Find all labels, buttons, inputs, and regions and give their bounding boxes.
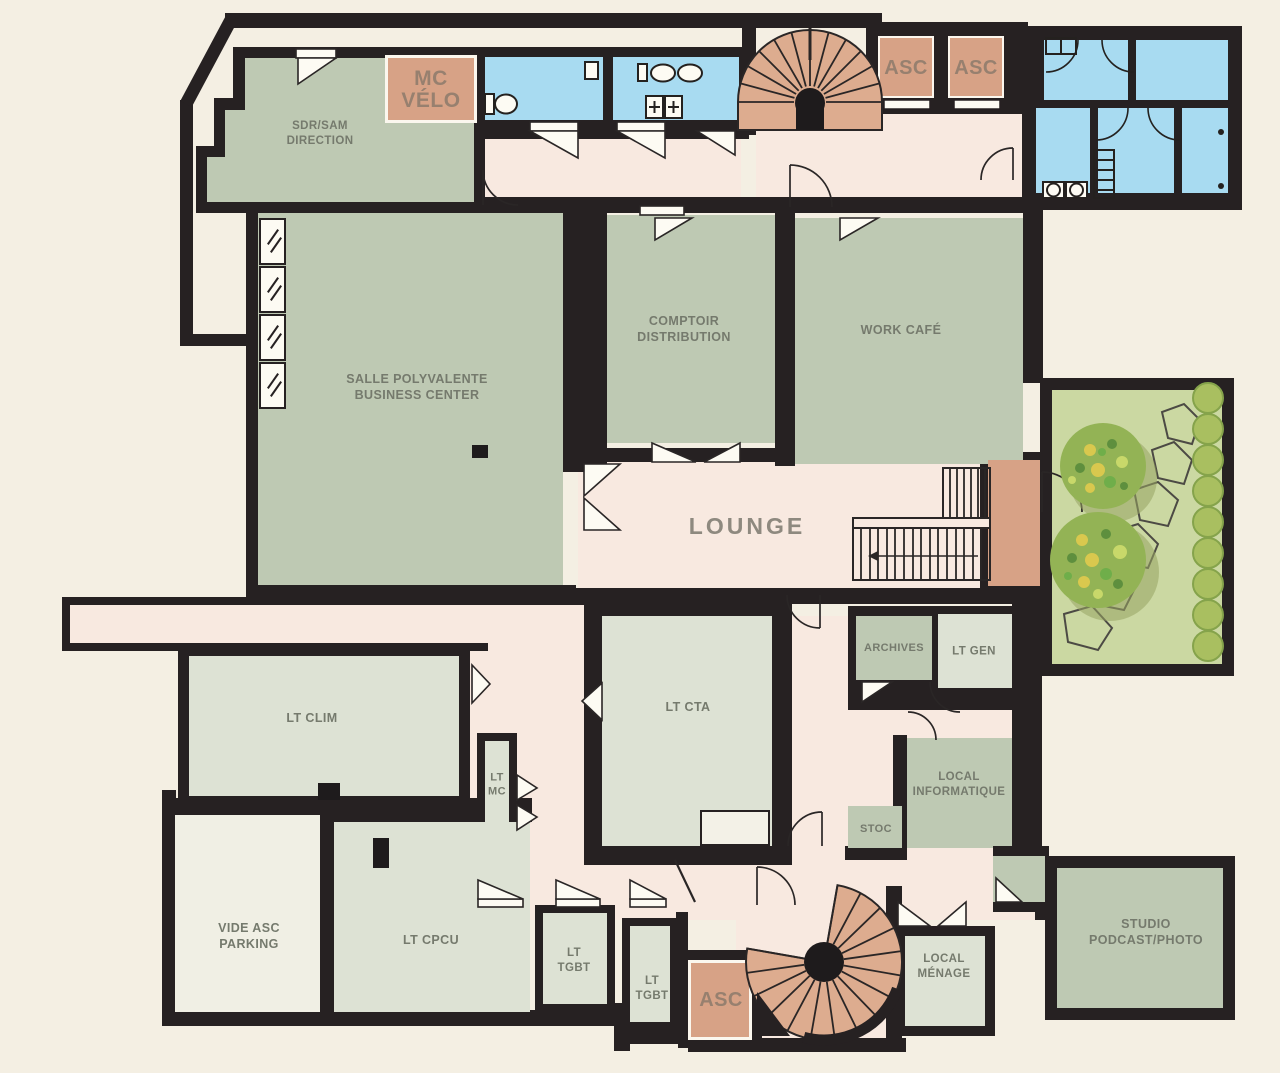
room-label-lt-clim: LT CLIM [286, 710, 337, 726]
floor-plan: SDR/SAM DIRECTION MC VÉLO ASC ASC SALLE … [0, 0, 1280, 1073]
room-label-lt-mc: LT MC [488, 771, 506, 800]
room-label-asc-1: ASC [884, 55, 927, 81]
corridor-stoc [848, 740, 893, 808]
room-sanitary-5 [1180, 106, 1230, 195]
wall-diagonal [186, 16, 233, 104]
wall-segment [775, 210, 795, 466]
wall-segment [584, 600, 792, 616]
wall-segment [62, 597, 584, 605]
room-label-asc-bottom: ASC [699, 987, 742, 1013]
room-label-salle-polyvalente: SALLE POLYVALENTE BUSINESS CENTER [346, 371, 488, 404]
room-lt-cpcu [334, 822, 530, 1012]
room-wc-top-left [483, 55, 605, 122]
room-work-cafe [795, 218, 1023, 464]
wall-segment [584, 846, 792, 865]
cta-recess [700, 810, 770, 846]
room-label-lt-tgbt-1: LT TGBT [558, 946, 591, 976]
room-label-lt-gen: LT GEN [952, 645, 996, 660]
room-label-lt-cpcu: LT CPCU [403, 932, 459, 948]
room-label-lounge: LOUNGE [689, 512, 805, 542]
garden [1040, 378, 1234, 676]
room-label-vide-asc: VIDE ASC PARKING [218, 920, 280, 953]
wall-segment [1012, 592, 1042, 865]
window-icon [259, 218, 286, 265]
room-label-lt-tgbt-2: LT TGBT [636, 974, 669, 1004]
window-icon [259, 266, 286, 313]
room-label-lt-cta: LT CTA [666, 699, 711, 715]
room-label-local-menage: LOCAL MÉNAGE [918, 952, 971, 982]
wall-segment [225, 13, 747, 28]
wall-segment [1023, 205, 1043, 383]
wall-segment [845, 846, 907, 860]
corridor-top-left [477, 131, 741, 205]
wall-segment [180, 100, 193, 340]
wall-segment [162, 1010, 630, 1026]
room-label-local-informatique: LOCAL INFORMATIQUE [913, 770, 1006, 800]
studio-connector [993, 846, 1047, 912]
wall-segment [162, 790, 176, 1024]
room-label-comptoir: COMPTOIR DISTRIBUTION [637, 313, 731, 346]
wall-segment [563, 200, 607, 472]
wall-segment [62, 597, 70, 651]
wall-segment [742, 13, 756, 135]
room-label-studio: STUDIO PODCAST/PHOTO [1089, 916, 1203, 949]
room-sanitary-2 [1134, 38, 1230, 102]
room-sanitary-1 [1042, 38, 1130, 102]
corridor-right-of-cta [792, 616, 848, 848]
room-label-work-cafe: WORK CAFÉ [861, 322, 942, 338]
room-vide-asc-parking [175, 815, 320, 1012]
wall-segment [318, 805, 334, 1020]
room-sanitary-3 [1034, 106, 1092, 195]
wall-segment [772, 600, 792, 864]
room-wc-top-right [611, 55, 741, 122]
wall-segment [584, 600, 602, 864]
wall-segment [742, 13, 882, 28]
room-sanitary-4 [1096, 106, 1176, 195]
window-icon [259, 314, 286, 361]
stair-landing [988, 460, 1040, 586]
room-label-asc-2: ASC [954, 55, 997, 81]
room-label-stoc: STOC [860, 822, 892, 836]
room-label-archives: ARCHIVES [864, 641, 924, 655]
room-label-sdr-sam: SDR/SAM DIRECTION [287, 119, 354, 149]
room-label-mc-velo: MC VÉLO [401, 68, 460, 112]
window-icon [259, 362, 286, 409]
